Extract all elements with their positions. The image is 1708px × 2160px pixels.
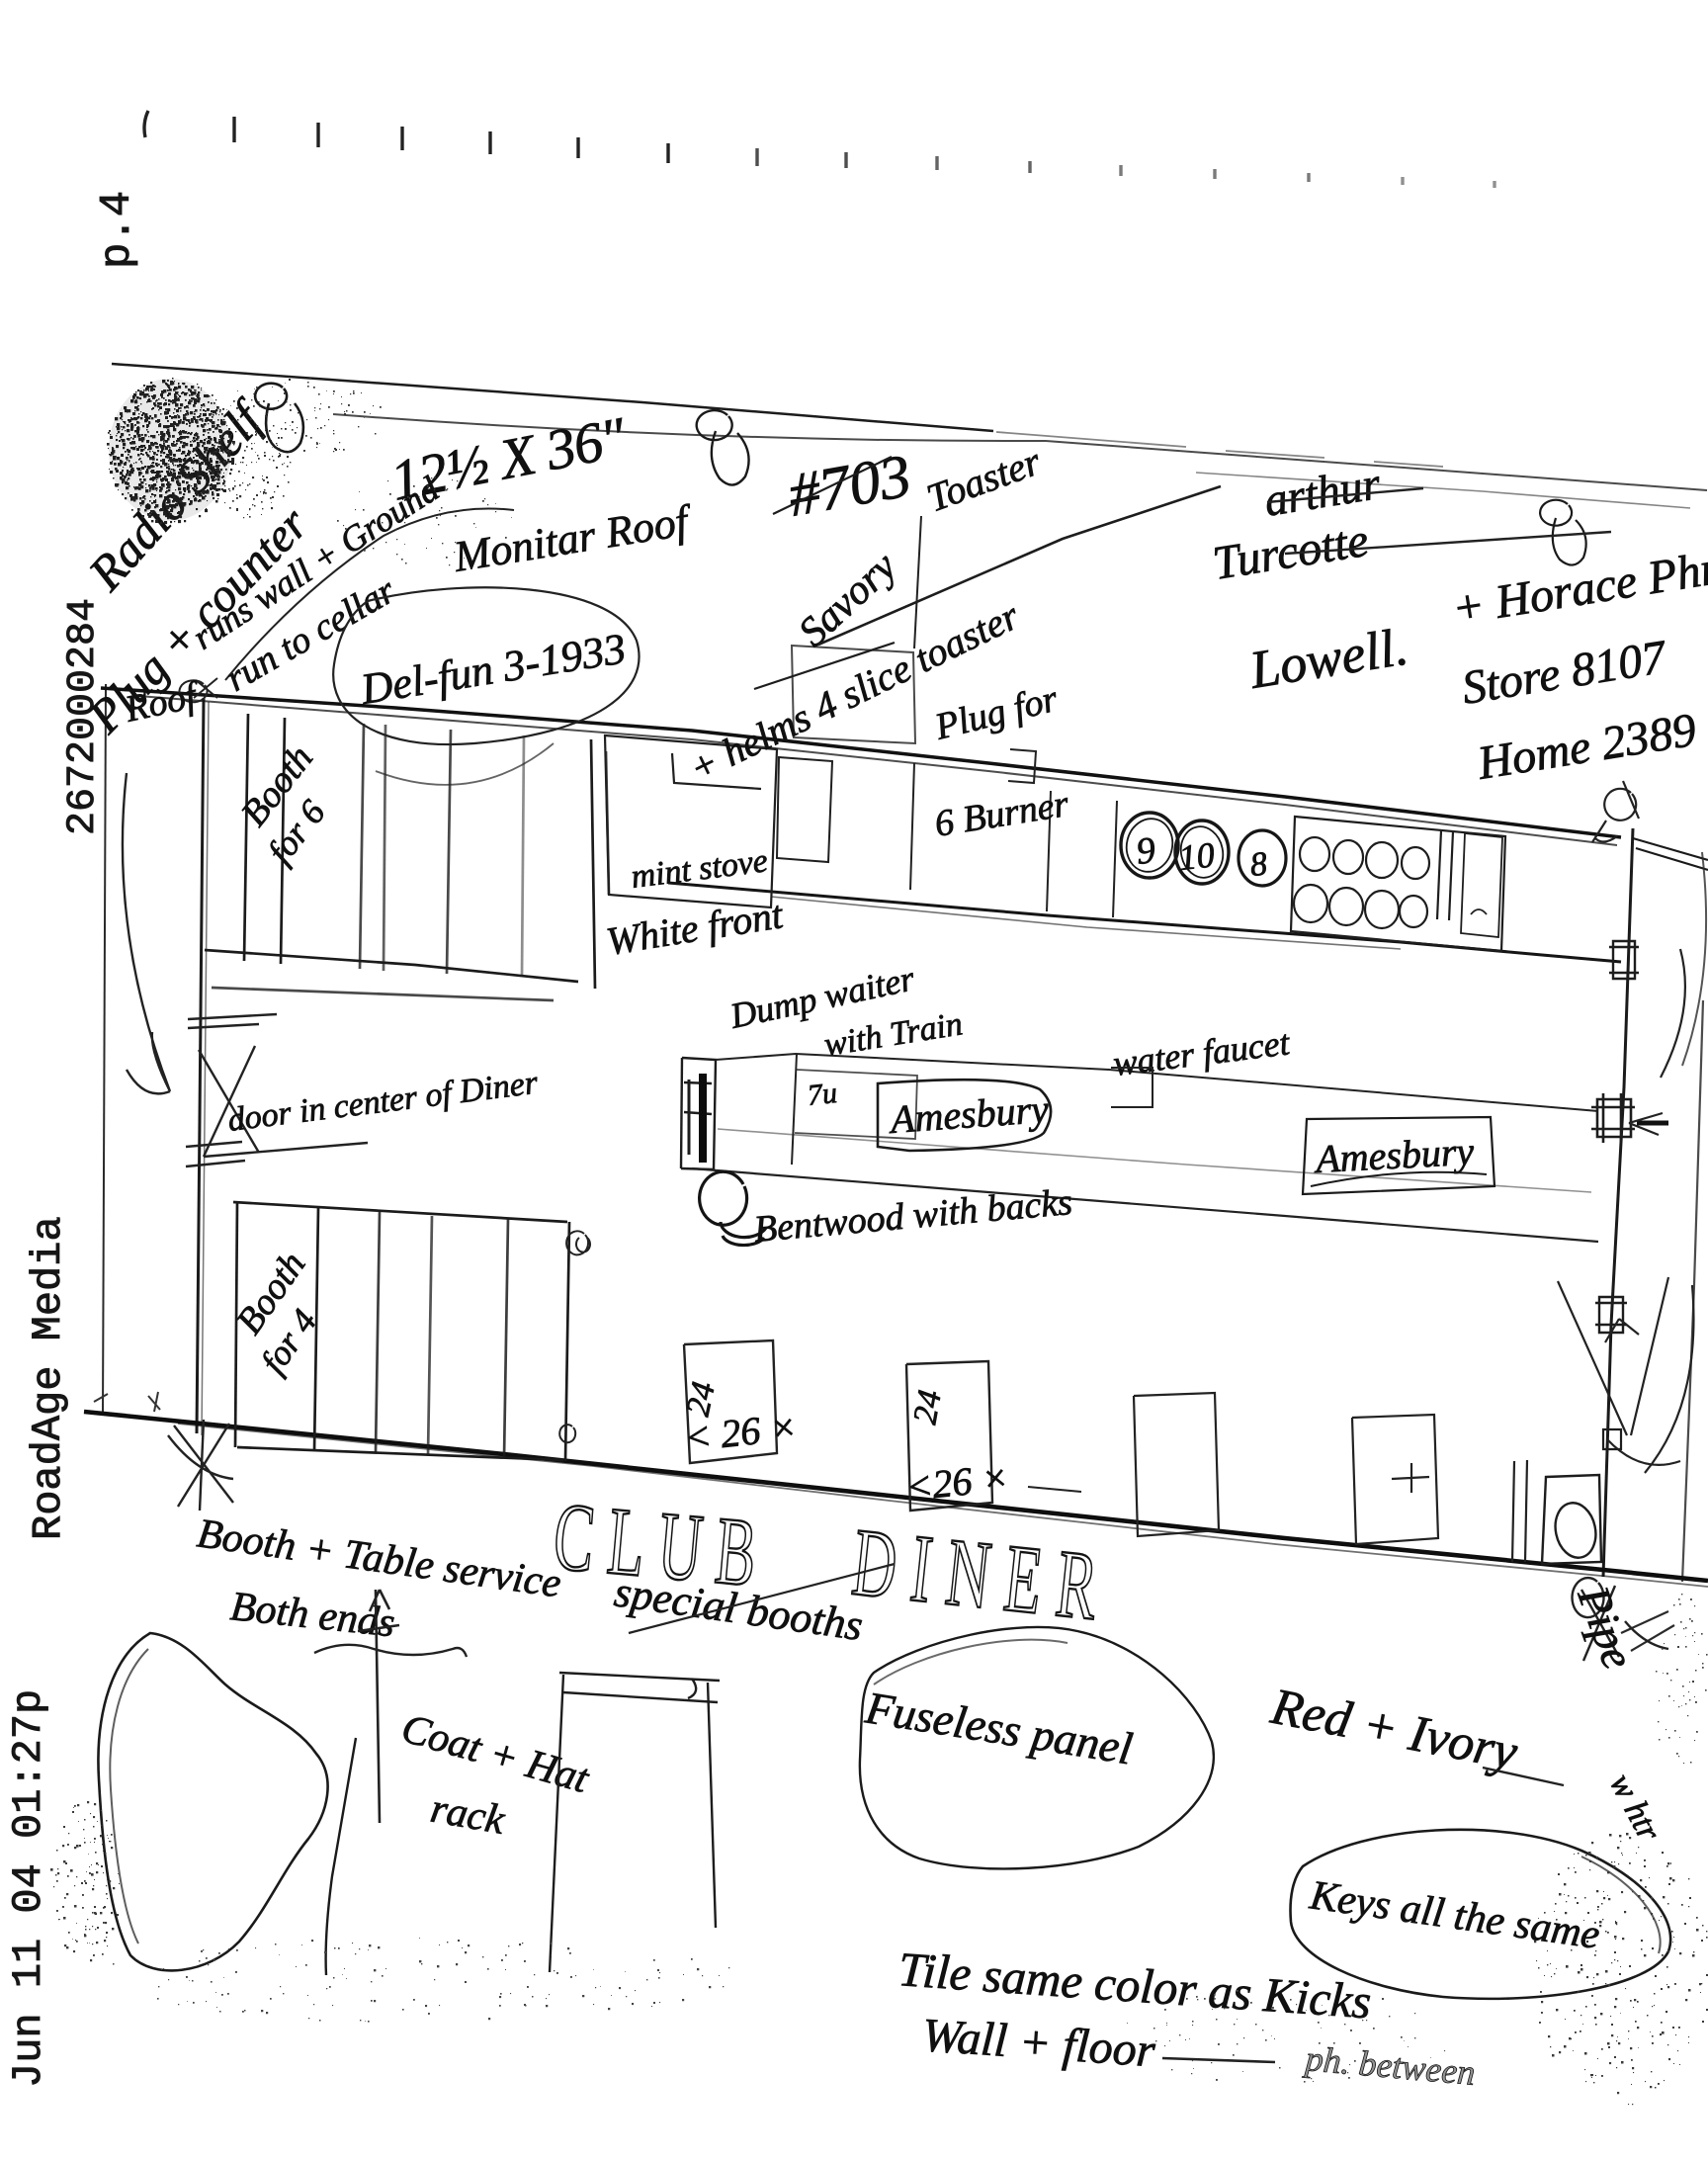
svg-text:10: 10 <box>1177 834 1217 878</box>
svg-text:p.4: p.4 <box>93 191 142 269</box>
svg-text:24: 24 <box>906 1387 948 1426</box>
svg-text:RoadAge Media: RoadAge Media <box>25 1216 72 1540</box>
svg-text:Jun 11 04 01:27p: Jun 11 04 01:27p <box>5 1689 52 2088</box>
svg-text:7u: 7u <box>806 1077 838 1112</box>
